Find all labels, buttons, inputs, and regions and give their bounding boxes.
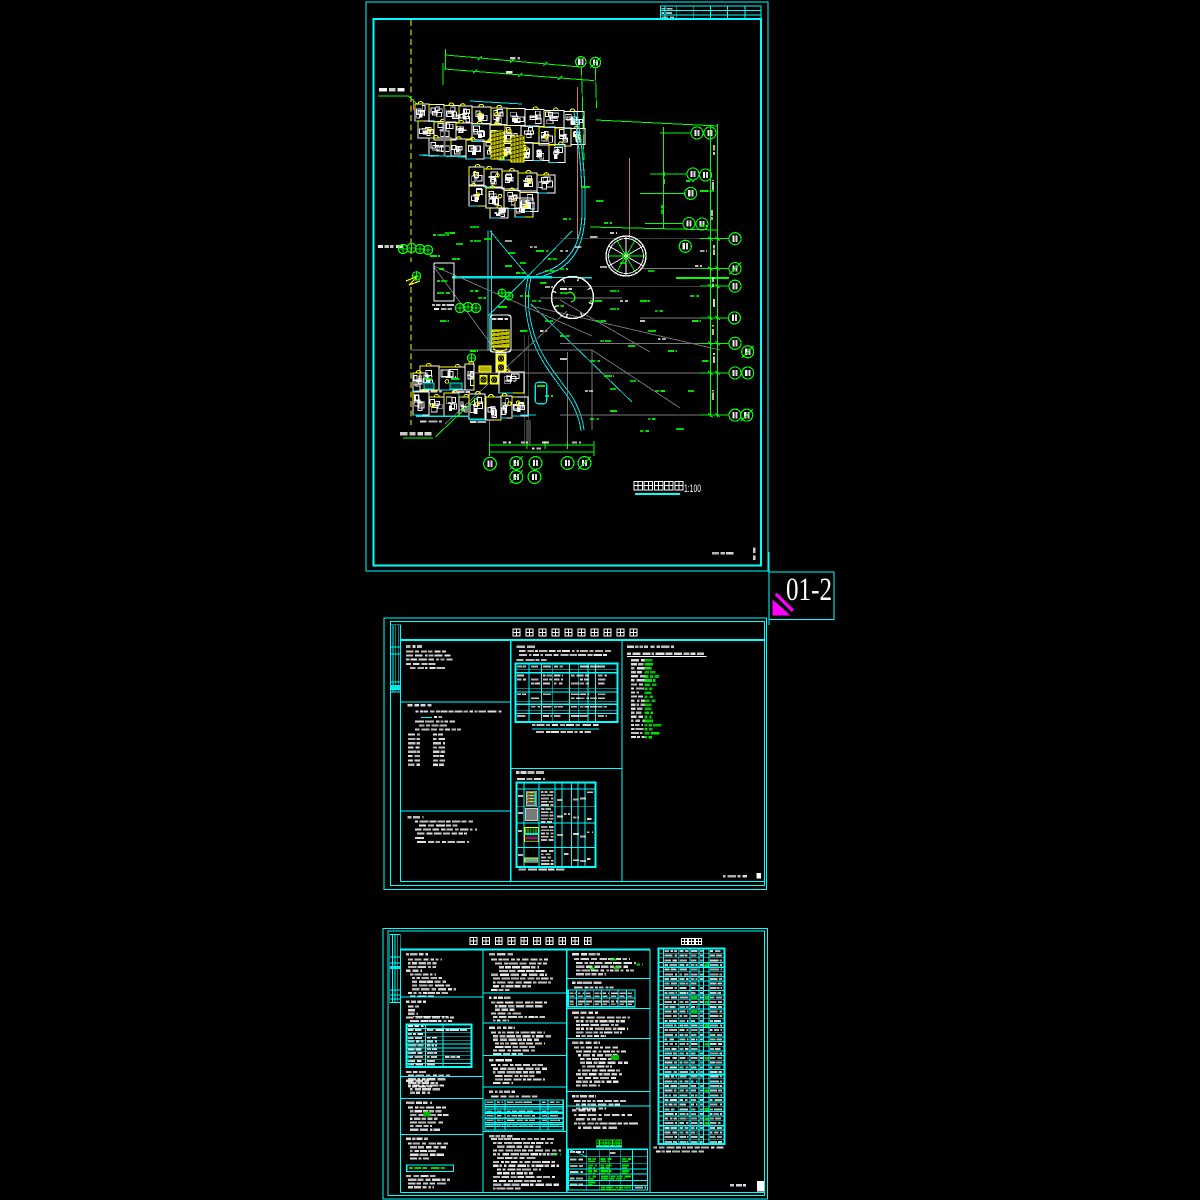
svg-text:01-2: 01-2 <box>786 572 832 608</box>
svg-text:1:100: 1:100 <box>684 483 701 495</box>
